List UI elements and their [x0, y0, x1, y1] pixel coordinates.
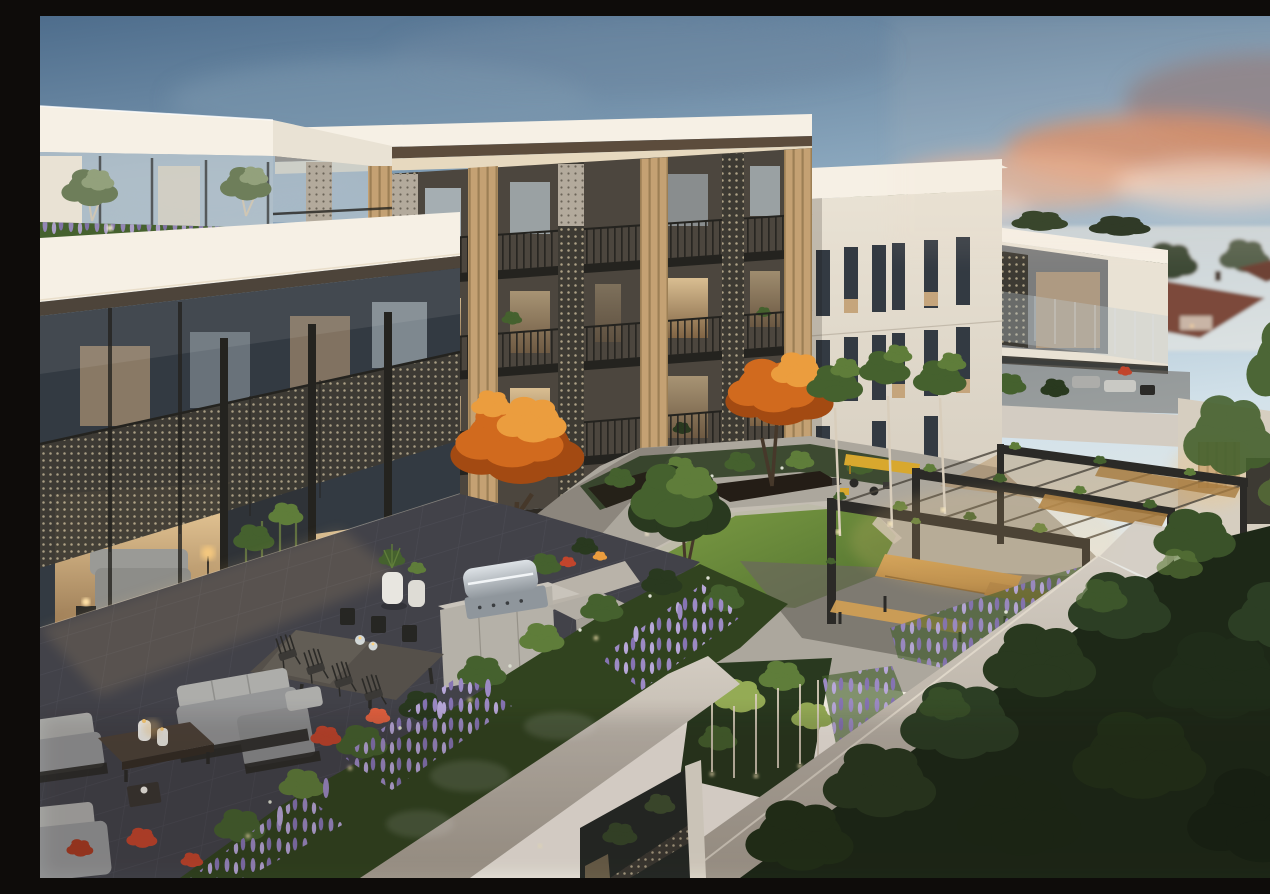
warm-haze — [890, 16, 1270, 256]
terrace-sofa — [1072, 376, 1100, 388]
lamp-glow — [201, 546, 215, 560]
uplight — [941, 508, 946, 513]
wing-roof-terrace — [973, 362, 1202, 448]
upper-terrace-right — [273, 156, 392, 228]
perforated-panel — [306, 162, 332, 226]
uplight — [888, 522, 893, 527]
cafe-table — [850, 479, 859, 488]
candle-glow — [82, 598, 90, 606]
path-light — [107, 225, 113, 231]
terrace-chair — [1140, 385, 1155, 395]
perforated-pillar-light — [558, 164, 584, 226]
white-pot — [408, 580, 425, 607]
render-canvas — [40, 16, 1270, 878]
terrace-sofa — [1104, 380, 1136, 392]
bottom-vignette — [40, 716, 1270, 878]
uplight — [836, 530, 841, 535]
white-pot — [382, 572, 403, 604]
architectural-render: Dusk aerial rendering of a modern multi-… — [40, 16, 1270, 878]
